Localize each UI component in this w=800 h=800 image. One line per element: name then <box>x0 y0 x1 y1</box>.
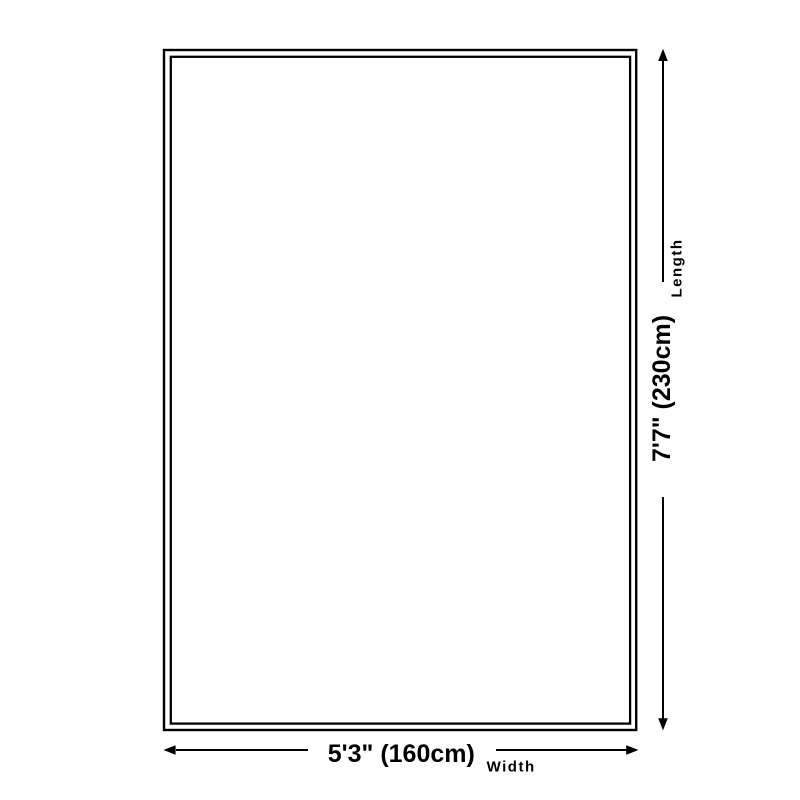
svg-text:7'7" (230cm): 7'7" (230cm) <box>648 315 676 462</box>
svg-text:Width: Width <box>487 758 536 775</box>
svg-text:Length: Length <box>669 239 686 298</box>
svg-text:5'3" (160cm): 5'3" (160cm) <box>328 740 475 768</box>
